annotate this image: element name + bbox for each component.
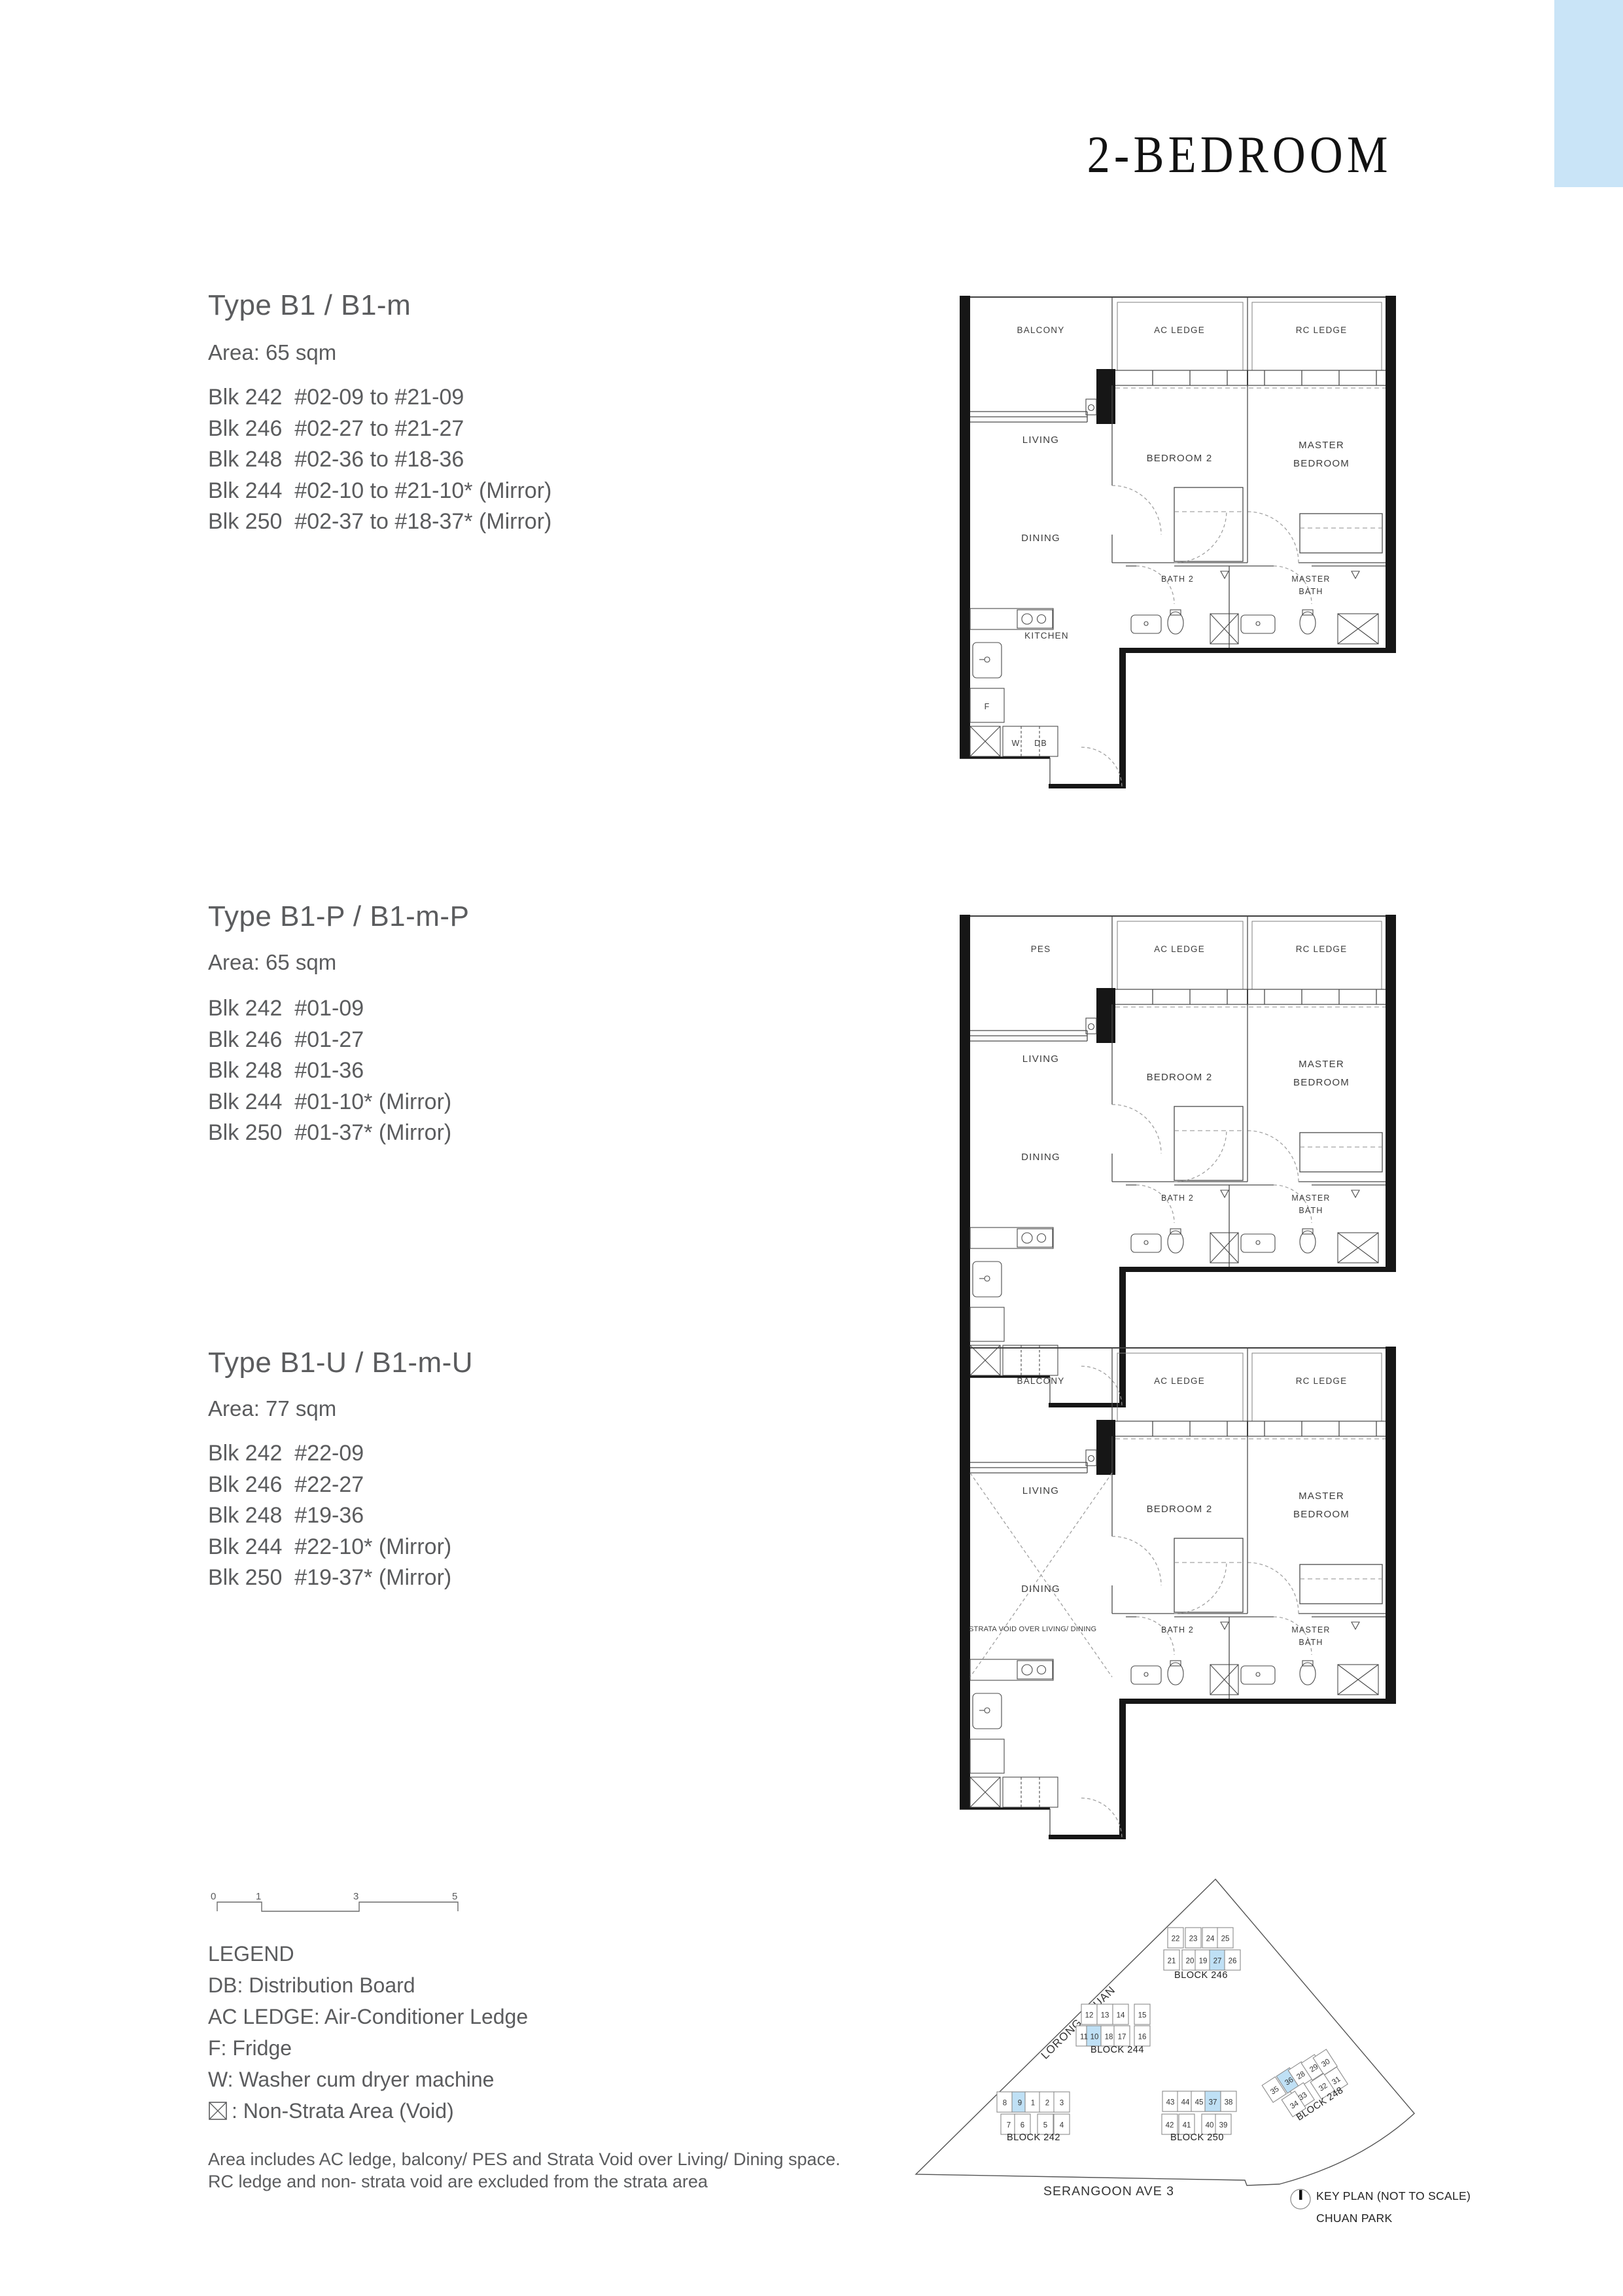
room-label-master-2: BEDROOM [1293, 1077, 1350, 1088]
keyplan-unit-number: 11 [1080, 2034, 1088, 2041]
legend-item: W: Washer cum dryer machine [208, 2064, 528, 2095]
room-label-dining: DINING [1021, 1152, 1060, 1163]
room-label-bedroom2: BEDROOM 2 [1147, 453, 1213, 464]
room-label-balcony: BALCONY [1017, 325, 1065, 335]
room-label-bedroom2: BEDROOM 2 [1147, 1504, 1213, 1515]
room-label-living: LIVING [1022, 434, 1059, 446]
room-label-masterbath-1: MASTER [1291, 1625, 1330, 1634]
room-label-dining: DINING [1021, 533, 1060, 544]
room-label-pes: PES [1031, 944, 1051, 954]
keyplan-unit-number: 2 [1045, 2100, 1049, 2108]
key-plan: LORONG CHUAN SERANGOON AVE 3 22232425212… [903, 1858, 1623, 2244]
keyplan-unit-number: 8 [1003, 2100, 1007, 2108]
label-washer: W [1012, 739, 1021, 748]
room-label-living: LIVING [1022, 1053, 1059, 1065]
keyplan-unit-number: 25 [1221, 1935, 1230, 1943]
keyplan-unit-number: 9 [1018, 2100, 1022, 2108]
room-label-bath2: BATH 2 [1161, 574, 1194, 584]
keyplan-unit-number: 17 [1118, 2034, 1126, 2041]
footnote-line1: Area includes AC ledge, balcony/ PES and… [208, 2148, 841, 2170]
keyplan-block: 434445373842414039BLOCK 250 [1162, 2091, 1236, 2143]
room-label-ac-ledge: AC LEDGE [1154, 944, 1205, 954]
site-boundary [916, 1879, 1414, 2185]
legend-void-item: : Non-Strata Area (Void) [208, 2095, 528, 2127]
floorplan-b1p-labels: PES AC LEDGE RC LEDGE LIVING DINING BEDR… [1021, 944, 1350, 1215]
legend-item: DB: Distribution Board [208, 1969, 528, 2001]
keyplan-block: 222324252120192726BLOCK 246 [1164, 1928, 1240, 1981]
strata-void-cross [970, 1473, 1112, 1677]
legend: LEGEND DB: Distribution BoardAC LEDGE: A… [208, 1938, 528, 2127]
room-label-living: LIVING [1022, 1485, 1059, 1496]
keyplan-unit-number: 13 [1101, 2012, 1109, 2020]
room-label-masterbath-1: MASTER [1291, 1193, 1330, 1203]
keyplan-block: 353628293031323334BLOCK 248 [1262, 2049, 1348, 2123]
unit-line: Blk 248 #19-36 [208, 1500, 451, 1532]
room-label-rc-ledge: RC LEDGE [1296, 325, 1348, 335]
non-strata-void-icon [208, 2101, 228, 2121]
corner-accent-band [1554, 0, 1623, 187]
keyplan-block-label: BLOCK 242 [1007, 2132, 1060, 2143]
room-label-master-1: MASTER [1299, 1059, 1344, 1070]
room-label-bath2: BATH 2 [1161, 1625, 1194, 1634]
floorplan-b1u-labels: BALCONY AC LEDGE RC LEDGE LIVING DINING … [969, 1376, 1350, 1647]
keyplan-unit-number: 10 [1091, 2034, 1099, 2041]
room-label-masterbath-2: BATH [1299, 1206, 1323, 1215]
room-label-master-2: BEDROOM [1293, 1509, 1350, 1520]
room-label-master-2: BEDROOM [1293, 458, 1350, 469]
keyplan-unit-number: 26 [1229, 1958, 1237, 1966]
area-b1: Area: 65 sqm [208, 340, 336, 365]
keyplan-unit-number: 7 [1007, 2122, 1011, 2130]
unit-line: Blk 250 #01-37* (Mirror) [208, 1118, 451, 1149]
room-label-dining: DINING [1021, 1583, 1060, 1595]
room-label-bath2: BATH 2 [1161, 1193, 1194, 1203]
room-label-ac-ledge: AC LEDGE [1154, 325, 1205, 335]
keyplan-unit-number: 23 [1189, 1935, 1198, 1943]
keyplan-unit-number: 5 [1043, 2122, 1047, 2130]
unit-line: Blk 248 #01-36 [208, 1055, 451, 1087]
keyplan-block-label: BLOCK 250 [1170, 2132, 1224, 2143]
unit-list-b1: Blk 242 #02-09 to #21-09Blk 246 #02-27 t… [208, 382, 551, 538]
keyplan-unit-number: 37 [1209, 2099, 1217, 2107]
keyplan-unit-number: 45 [1195, 2099, 1204, 2107]
keyplan-unit-number: 12 [1085, 2012, 1094, 2020]
keyplan-unit-number: 22 [1172, 1935, 1180, 1943]
keyplan-unit-number: 1 [1031, 2100, 1035, 2108]
keyplan-unit-number: 39 [1219, 2122, 1228, 2130]
legend-items: DB: Distribution BoardAC LEDGE: Air-Cond… [208, 1969, 528, 2095]
room-label-masterbath-2: BATH [1299, 1638, 1323, 1647]
keyplan-unit-number: 16 [1138, 2034, 1147, 2041]
keyplan-unit-number: 40 [1206, 2122, 1214, 2130]
area-b1u: Area: 77 sqm [208, 1396, 336, 1421]
floorplan-b1u: BALCONY AC LEDGE RC LEDGE LIVING DINING … [958, 1345, 1397, 1680]
floorplan-b1: BALCONY AC LEDGE RC LEDGE LIVING DINING … [958, 294, 1397, 790]
floorplan-b1-labels: BALCONY AC LEDGE RC LEDGE LIVING DINING … [985, 325, 1350, 748]
unit-line: Blk 250 #02-37 to #18-37* (Mirror) [208, 506, 551, 538]
room-label-kitchen: KITCHEN [1024, 631, 1069, 641]
keyplan-blocks: 222324252120192726BLOCK 2461213141511101… [997, 1928, 1348, 2143]
keyplan-unit-number: 4 [1060, 2122, 1064, 2130]
unit-line: Blk 244 #02-10 to #21-10* (Mirror) [208, 476, 551, 507]
keyplan-block: 891237654BLOCK 242 [997, 2092, 1070, 2143]
brochure-page: 2-BEDROOM Type B1 / B1-m Area: 65 sqm Bl… [0, 0, 1623, 2296]
legend-item: F: Fridge [208, 2032, 528, 2064]
type-title-b1: Type B1 / B1-m [208, 289, 411, 322]
keyplan-unit-number: 20 [1186, 1958, 1195, 1966]
type-title-b1p: Type B1-P / B1-m-P [208, 900, 469, 933]
keyplan-unit-number: 27 [1213, 1958, 1222, 1966]
legend-void-label: : Non-Strata Area (Void) [232, 2095, 454, 2127]
road-label-serangoon-ave3: SERANGOON AVE 3 [1043, 2184, 1174, 2199]
room-label-bedroom2: BEDROOM 2 [1147, 1072, 1213, 1083]
unit-line: Blk 248 #02-36 to #18-36 [208, 444, 551, 476]
room-label-masterbath-2: BATH [1299, 587, 1323, 596]
keyplan-unit-number: 14 [1117, 2012, 1125, 2020]
keyplan-unit-number: 44 [1181, 2099, 1190, 2107]
keyplan-unit-number: 43 [1166, 2099, 1175, 2107]
unit-line: Blk 242 #22-09 [208, 1438, 451, 1470]
scale-tick-1: 1 [256, 1891, 261, 1902]
scale-bar: 0 1 3 5 [206, 1888, 468, 1917]
room-label-rc-ledge: RC LEDGE [1296, 1376, 1348, 1386]
scale-tick-5: 5 [452, 1891, 457, 1902]
keyplan-unit-number: 24 [1206, 1935, 1215, 1943]
type-title-b1u: Type B1-U / B1-m-U [208, 1347, 473, 1379]
unit-line: Blk 246 #22-27 [208, 1470, 451, 1501]
keyplan-unit-number: 42 [1166, 2122, 1174, 2130]
strata-void-label: STRATA VOID OVER LIVING/ DINING [969, 1625, 1096, 1633]
footnote-line2: RC ledge and non- strata void are exclud… [208, 2170, 708, 2193]
legend-item: AC LEDGE: Air-Conditioner Ledge [208, 2001, 528, 2032]
scale-tick-0: 0 [211, 1891, 216, 1902]
room-label-ac-ledge: AC LEDGE [1154, 1376, 1205, 1386]
unit-line: Blk 244 #01-10* (Mirror) [208, 1087, 451, 1118]
room-label-masterbath-1: MASTER [1291, 574, 1330, 584]
unit-line: Blk 242 #02-09 to #21-09 [208, 382, 551, 414]
floorplan-b1p: PES AC LEDGE RC LEDGE LIVING DINING BEDR… [958, 913, 1397, 1241]
room-label-balcony: BALCONY [1017, 1376, 1065, 1386]
keyplan-unit-number: 41 [1183, 2122, 1191, 2130]
unit-line: Blk 246 #02-27 to #21-27 [208, 414, 551, 445]
unit-list-b1p: Blk 242 #01-09Blk 246 #01-27Blk 248 #01-… [208, 993, 451, 1149]
keyplan-unit-number: 18 [1105, 2034, 1113, 2041]
keyplan-unit-number: 21 [1168, 1958, 1176, 1966]
keyplan-unit-number: 3 [1060, 2100, 1064, 2108]
north-icon [1291, 2189, 1310, 2209]
keyplan-block-label: BLOCK 244 [1091, 2045, 1144, 2055]
keyplan-unit-number: 38 [1225, 2099, 1233, 2107]
keyplan-project-name: CHUAN PARK [1316, 2212, 1392, 2225]
room-label-master-1: MASTER [1299, 1491, 1344, 1502]
room-label-master-1: MASTER [1299, 440, 1344, 451]
unit-list-b1u: Blk 242 #22-09Blk 246 #22-27Blk 248 #19-… [208, 1438, 451, 1594]
page-title: 2-BEDROOM [1087, 126, 1392, 185]
keyplan-unit-number: 15 [1138, 2012, 1147, 2020]
label-db: DB [1034, 739, 1047, 748]
label-fridge: F [985, 702, 990, 711]
unit-line: Blk 250 #19-37* (Mirror) [208, 1563, 451, 1594]
keyplan-block: 121314151110181716BLOCK 244 [1076, 2004, 1150, 2055]
keyplan-unit-number: 6 [1021, 2122, 1024, 2130]
unit-line: Blk 244 #22-10* (Mirror) [208, 1532, 451, 1563]
area-b1p: Area: 65 sqm [208, 950, 336, 975]
unit-line: Blk 246 #01-27 [208, 1025, 451, 1056]
unit-line: Blk 242 #01-09 [208, 993, 451, 1025]
legend-title: LEGEND [208, 1938, 528, 1969]
room-label-rc-ledge: RC LEDGE [1296, 944, 1348, 954]
keyplan-caption: KEY PLAN (NOT TO SCALE) [1316, 2189, 1471, 2202]
keyplan-unit-number: 19 [1199, 1958, 1208, 1966]
keyplan-block-label: BLOCK 246 [1174, 1970, 1228, 1981]
scale-tick-3: 3 [353, 1891, 358, 1902]
